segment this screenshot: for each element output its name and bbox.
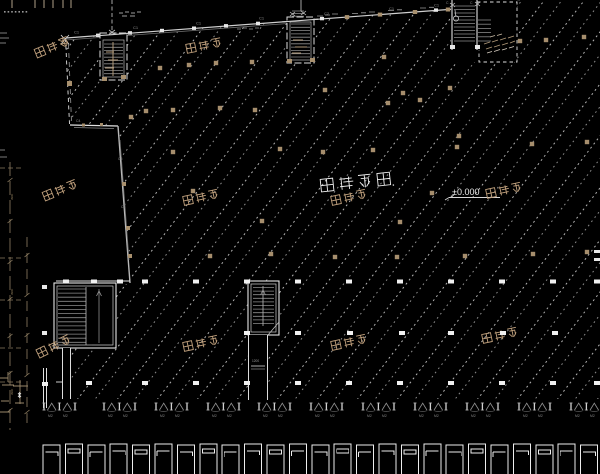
svg-text:M2: M2 [48, 414, 53, 418]
svg-text:3900: 3900 [10, 288, 14, 295]
svg-text:C1: C1 [259, 16, 265, 21]
svg-text:M2: M2 [330, 414, 335, 418]
svg-text:M2: M2 [63, 414, 68, 418]
svg-text:M2: M2 [523, 414, 528, 418]
svg-text:M2: M2 [434, 414, 439, 418]
svg-text:M2: M2 [108, 414, 113, 418]
svg-text:M2: M2 [367, 414, 372, 418]
svg-text:C4: C4 [76, 119, 81, 123]
svg-text:C1: C1 [196, 20, 202, 25]
svg-text:C1: C1 [133, 25, 139, 30]
svg-text:M2: M2 [175, 414, 180, 418]
svg-text:M2: M2 [315, 414, 320, 418]
svg-text:C1: C1 [74, 29, 80, 34]
svg-text:M2: M2 [419, 414, 424, 418]
svg-text:M2: M2 [471, 414, 476, 418]
svg-text:M2: M2 [486, 414, 491, 418]
svg-text:M2: M2 [538, 414, 543, 418]
svg-text:M2: M2 [227, 414, 232, 418]
svg-text:3900: 3900 [10, 388, 14, 395]
svg-text:M2: M2 [382, 414, 387, 418]
svg-text:M2: M2 [278, 414, 283, 418]
svg-text:C1: C1 [121, 205, 126, 209]
svg-text:M2: M2 [263, 414, 268, 418]
svg-text:3900: 3900 [10, 193, 14, 200]
svg-text:C1: C1 [434, 3, 440, 8]
svg-text:M2: M2 [590, 414, 595, 418]
svg-text:C5: C5 [118, 157, 123, 161]
svg-text:M2: M2 [160, 414, 165, 418]
svg-text:M2: M2 [123, 414, 128, 418]
svg-text:1200: 1200 [252, 359, 259, 363]
svg-text:M2: M2 [212, 414, 217, 418]
svg-text:±0.000: ±0.000 [452, 187, 479, 197]
svg-text:M2: M2 [575, 414, 580, 418]
